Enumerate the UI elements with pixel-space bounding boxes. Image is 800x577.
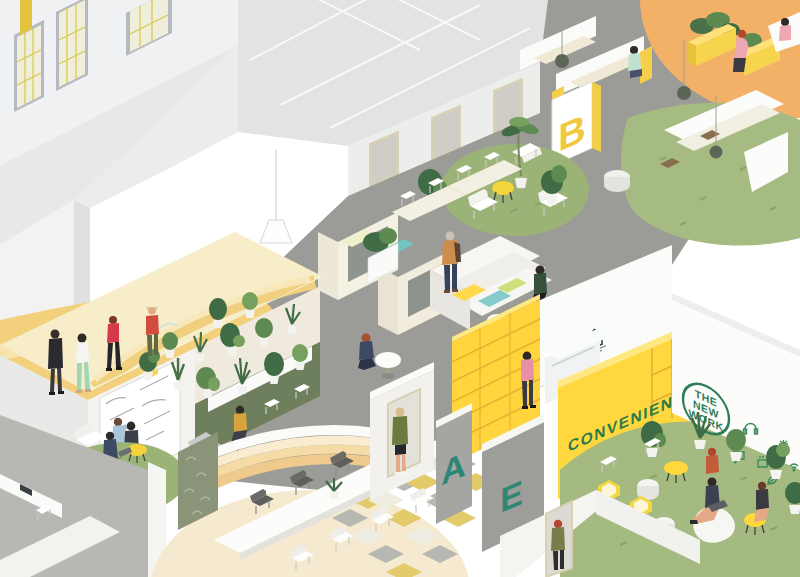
wayfinding-wall-a: A xyxy=(436,403,472,524)
isometric-office-illustration: B xyxy=(0,0,800,577)
pouf xyxy=(604,170,630,192)
coffee-table xyxy=(664,461,688,483)
illustration-canvas: B xyxy=(0,0,800,577)
yellow-pillar xyxy=(20,0,32,35)
booth-panel-yellow xyxy=(640,46,652,84)
window xyxy=(14,20,44,112)
window xyxy=(56,0,88,91)
pendant-lamp-cone xyxy=(260,150,292,243)
